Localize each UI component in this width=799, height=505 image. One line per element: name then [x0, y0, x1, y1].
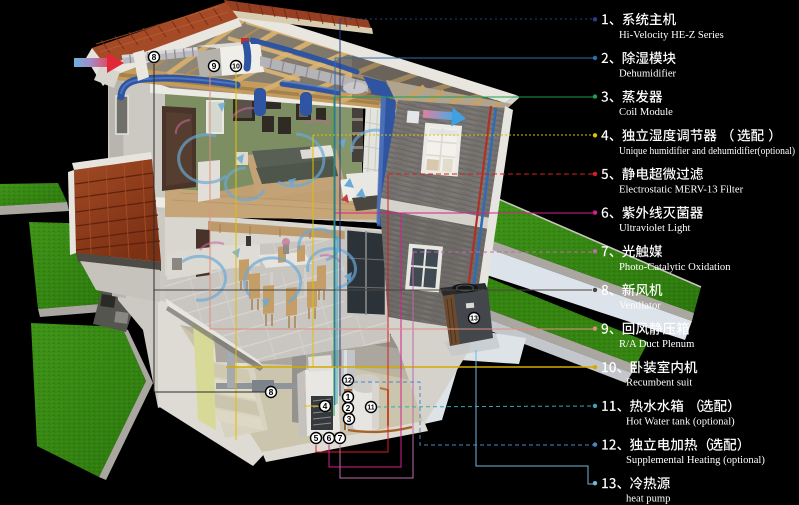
svg-text:Ventilator: Ventilator: [619, 300, 661, 311]
svg-text:Photo-Catalytic Oxidation: Photo-Catalytic Oxidation: [619, 262, 731, 273]
svg-text:Hi-Velocity HE-Z Series: Hi-Velocity HE-Z Series: [619, 30, 724, 41]
svg-text:R/A Duct Plenum: R/A Duct Plenum: [619, 339, 695, 350]
svg-text:2: 2: [346, 403, 351, 413]
svg-text:9: 9: [212, 61, 217, 71]
svg-text:11: 11: [367, 405, 375, 412]
svg-text:Coil Module: Coil Module: [619, 107, 673, 118]
svg-text:heat pump: heat pump: [626, 494, 670, 505]
svg-text:Hot Water tank (optional): Hot Water tank (optional): [626, 416, 735, 427]
svg-text:8: 8: [269, 387, 274, 397]
svg-text:12: 12: [344, 378, 352, 385]
svg-text:8: 8: [152, 52, 157, 62]
svg-text:3: 3: [347, 414, 352, 424]
svg-text:Supplemental Heating (option: Supplemental Heating (optional): [626, 455, 765, 466]
svg-text:4: 4: [323, 401, 328, 411]
svg-text:Dehumidifier: Dehumidifier: [619, 69, 677, 80]
svg-text:Recumbent suit: Recumbent suit: [626, 378, 692, 389]
svg-text:5: 5: [314, 433, 319, 443]
svg-text:Ultraviolet Light: Ultraviolet Light: [619, 223, 691, 234]
svg-text:7: 7: [338, 433, 343, 443]
svg-text:1: 1: [346, 392, 351, 402]
svg-text:13: 13: [470, 316, 478, 323]
svg-text:Electrostatic MERV-13 Filter: Electrostatic MERV-13 Filter: [619, 184, 744, 195]
svg-text:6: 6: [327, 433, 332, 443]
svg-text:Unique humidifier and dehumidi: Unique humidifier and dehumidifier(optio…: [619, 146, 795, 157]
svg-text:10: 10: [232, 64, 240, 71]
